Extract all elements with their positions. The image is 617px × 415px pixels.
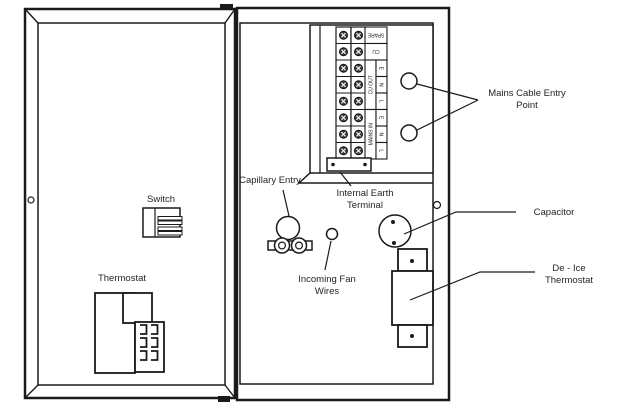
top-hinge	[220, 4, 233, 10]
terminal-label-l2: L	[378, 149, 384, 152]
mains-entry-label-1: Mains Cable Entry	[488, 88, 566, 99]
capacitor-symbol	[379, 215, 411, 247]
deice-screw	[410, 334, 414, 338]
deice-label-1: De - Ice	[552, 263, 585, 274]
mains-entry-label-2: Point	[516, 100, 538, 111]
switch-terminal-bar	[158, 221, 182, 225]
terminal-label-n2: N	[378, 132, 384, 136]
capacitor-terminal	[392, 241, 396, 245]
deice-screw	[410, 259, 414, 263]
switch-terminal-bar	[158, 232, 182, 236]
mains-entry-hole-bottom	[401, 125, 417, 141]
thermostat-top-block	[123, 293, 152, 323]
earth-terminal-bar	[327, 158, 371, 171]
capacitor-label: Capacitor	[534, 207, 575, 218]
thermostat-label: Thermostat	[98, 273, 146, 284]
earth-bar-screw	[363, 163, 367, 167]
bottom-hinge	[218, 396, 230, 402]
switch-terminal-bar	[158, 227, 182, 231]
gland-ring-inner	[279, 242, 286, 249]
incoming-fan-label-1: Incoming Fan	[298, 274, 356, 285]
terminal-label-n1: N	[378, 83, 384, 87]
switch-label: Switch	[147, 194, 175, 205]
terminal-block: SPARE CU CU OUT MAINS IN E N L E N L	[336, 27, 387, 159]
deice-thermostat-symbol	[392, 249, 433, 347]
door-latch-hole	[28, 197, 34, 203]
flange-hole	[434, 202, 441, 209]
earth-bar-screw	[331, 163, 335, 167]
diagram-canvas: Switch Thermostat	[0, 0, 617, 415]
thermostat-terminal-block	[135, 322, 164, 372]
capillary-bulb	[277, 217, 300, 240]
terminal-label-l1: L	[378, 100, 384, 103]
terminal-label-mains-in: MAINS IN	[368, 123, 374, 146]
mains-entry-hole-top	[401, 73, 417, 89]
terminal-label-spare: SPARE	[367, 31, 384, 37]
gland-ring-inner	[296, 242, 303, 249]
deice-body	[392, 271, 433, 325]
switch-symbol	[143, 208, 182, 237]
terminal-label-cu-out: CU OUT	[368, 75, 374, 94]
capacitor-terminal	[391, 220, 395, 224]
internal-earth-label-1: Internal Earth	[336, 188, 393, 199]
internal-earth-label-2: Terminal	[347, 200, 383, 211]
enclosure-diagram: Switch Thermostat	[0, 0, 617, 415]
deice-label-2: Thermostat	[545, 275, 593, 286]
capillary-entry-label: Capillary Entry	[239, 175, 301, 186]
switch-terminal-bar	[158, 217, 182, 221]
terminal-label-cu: CU	[372, 48, 380, 54]
incoming-fan-label-2: Wires	[315, 286, 340, 297]
fan-wires-hole	[327, 229, 338, 240]
